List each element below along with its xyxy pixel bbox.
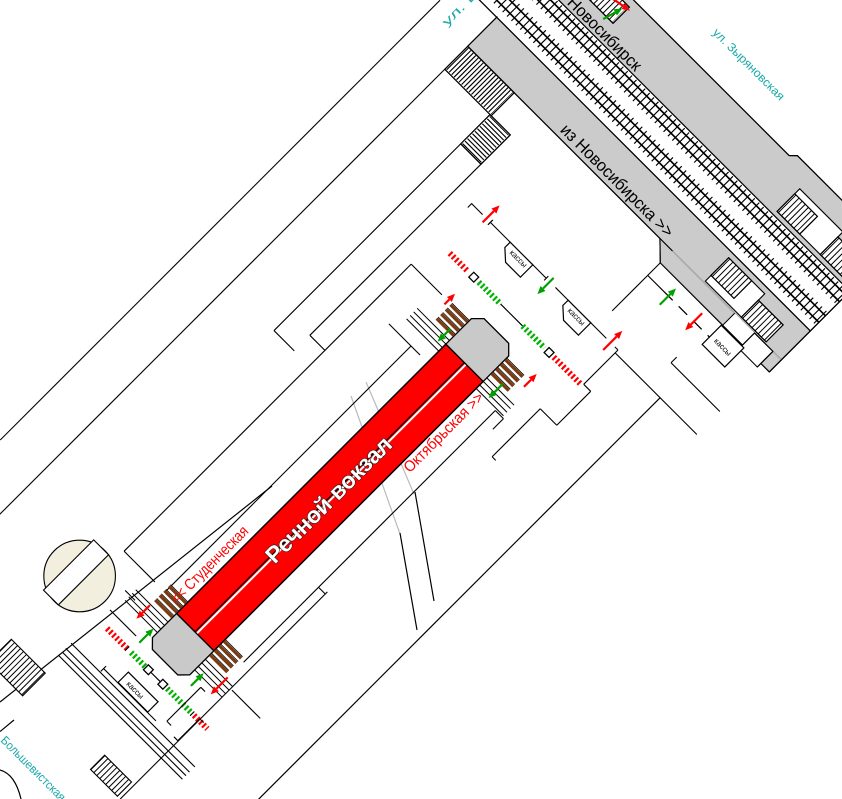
svg-text:Большевистская: Большевистская <box>0 733 69 799</box>
svg-text:Речной вокзал: Речной вокзал <box>260 431 397 568</box>
